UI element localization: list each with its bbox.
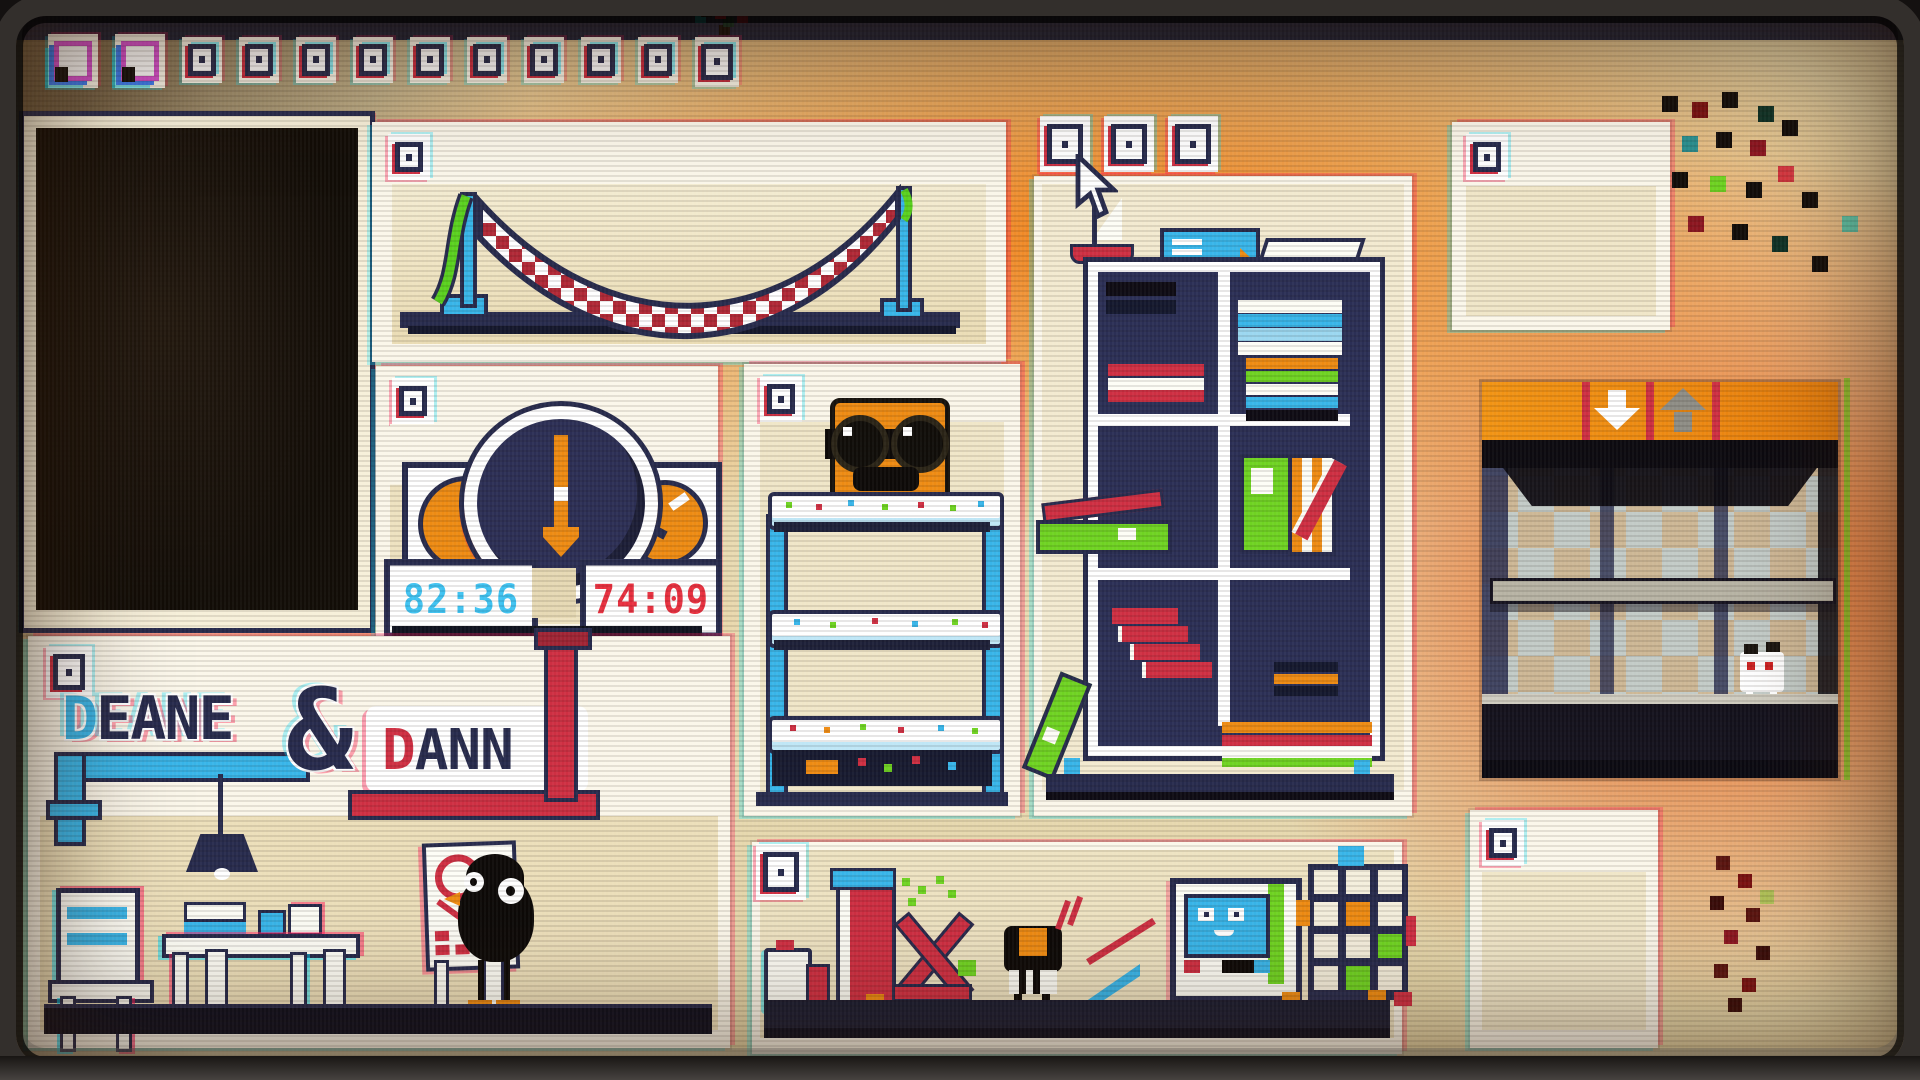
desk-item bbox=[258, 910, 286, 936]
photo-stamp[interactable] bbox=[182, 37, 222, 83]
bird-pupil bbox=[506, 886, 515, 896]
stamp-frame-icon bbox=[188, 44, 216, 76]
elevator-creature bbox=[1740, 652, 1784, 692]
book-stack bbox=[1246, 358, 1338, 369]
red-stairs-books bbox=[1112, 608, 1178, 624]
stamp-row bbox=[48, 34, 739, 88]
timer-gap bbox=[532, 568, 576, 618]
bunk-shadow bbox=[774, 522, 990, 532]
bunk-floor bbox=[756, 792, 1008, 806]
crate-side-block bbox=[1296, 900, 1310, 926]
creature-teeth bbox=[1019, 970, 1026, 994]
down-arrow-icon bbox=[1594, 408, 1640, 430]
photo-stamp[interactable] bbox=[1168, 116, 1218, 172]
photo-stamp[interactable] bbox=[638, 37, 678, 83]
pipe-flange bbox=[46, 800, 102, 820]
clock-hand-minute bbox=[668, 492, 690, 511]
dark-books bbox=[1274, 662, 1338, 672]
elevator[interactable] bbox=[1482, 382, 1838, 778]
photo-stamp[interactable] bbox=[410, 37, 450, 83]
red-sketch-squares bbox=[435, 931, 449, 941]
crate-side-block bbox=[1406, 916, 1416, 946]
interior-stripe bbox=[1818, 440, 1838, 702]
ladder-cap bbox=[830, 868, 896, 890]
stamp-frame-icon bbox=[587, 44, 615, 76]
dark-window-photo[interactable] bbox=[24, 116, 370, 628]
elevator-header bbox=[1482, 382, 1838, 440]
book-label bbox=[1118, 528, 1136, 540]
photo-stamp[interactable] bbox=[581, 37, 621, 83]
desk bbox=[162, 902, 358, 1006]
stamp-frame-icon bbox=[302, 44, 330, 76]
logo: DEANE & DANN bbox=[48, 682, 648, 852]
stamp-frame-icon bbox=[359, 44, 387, 76]
logo-pipe-blue bbox=[54, 752, 310, 782]
bird-eye-left bbox=[464, 872, 484, 892]
mushroom-creature bbox=[1004, 926, 1062, 1004]
glitch-green-line bbox=[1844, 378, 1850, 780]
green-block bbox=[958, 960, 976, 976]
empty-photo bbox=[1466, 186, 1656, 316]
empty-photo-frame-bottom[interactable] bbox=[1470, 810, 1658, 1048]
orange-splash bbox=[806, 760, 838, 774]
speckles bbox=[858, 758, 866, 766]
desk-legs-left bbox=[172, 952, 189, 1010]
stamp-frame-icon bbox=[644, 44, 672, 76]
bird-eye-right bbox=[498, 878, 524, 904]
clock-arrow-head bbox=[543, 537, 579, 557]
chair bbox=[52, 888, 148, 1006]
stamp-corner-icon bbox=[1466, 134, 1508, 180]
timer-value-left: 82:36 bbox=[403, 576, 519, 622]
mouse-cursor bbox=[1072, 154, 1118, 220]
stamp-corner-icon bbox=[760, 376, 802, 422]
bunk-mattress-3 bbox=[768, 716, 1004, 754]
dark-books bbox=[1106, 282, 1176, 296]
book-stack bbox=[1108, 364, 1204, 376]
elevator-floor-edge bbox=[1482, 694, 1838, 704]
photo-stamp[interactable] bbox=[524, 37, 564, 83]
logo-pipe-red-riser bbox=[544, 640, 578, 802]
chair-slats bbox=[67, 907, 127, 919]
photo-stamp[interactable] bbox=[695, 37, 739, 87]
crate-shelf bbox=[1308, 864, 1408, 1000]
green-book bbox=[1240, 454, 1292, 554]
creature-face bbox=[1009, 970, 1057, 994]
shelf-divider-h bbox=[1098, 414, 1350, 426]
workshop-photo-panel[interactable] bbox=[752, 842, 1402, 1054]
stamp-corner-icon bbox=[388, 134, 430, 180]
desk-books bbox=[184, 902, 246, 922]
desk-floor bbox=[44, 1004, 712, 1034]
red-ladder bbox=[836, 884, 896, 1012]
lamp-bulb bbox=[214, 868, 230, 880]
stamp-frame-icon bbox=[701, 44, 733, 80]
speckles bbox=[794, 619, 800, 625]
photo-stamp[interactable] bbox=[239, 37, 279, 83]
book-stack bbox=[1238, 300, 1342, 313]
down-arrow-icon bbox=[1608, 390, 1626, 410]
hammock-photo bbox=[392, 184, 986, 344]
creature-cap bbox=[1019, 928, 1047, 956]
bunk-photo-panel[interactable] bbox=[744, 364, 1020, 816]
book-label bbox=[1042, 726, 1060, 744]
clock-photo-panel[interactable]: 82:36 74:09 bbox=[376, 366, 718, 666]
empty-photo-frame-top[interactable] bbox=[1452, 122, 1670, 330]
shelf-divider-h bbox=[1098, 568, 1350, 580]
black-bird-creature bbox=[456, 868, 556, 1018]
stamp-corner-icon bbox=[1482, 820, 1524, 866]
screen-pupils bbox=[1204, 912, 1209, 917]
stamp-frame-icon bbox=[473, 44, 501, 76]
workshop-floor bbox=[764, 1000, 1390, 1038]
timer-value-right: 74:09 bbox=[593, 576, 709, 622]
edge-stamp-fragment bbox=[0, 700, 12, 746]
pipe-valve bbox=[534, 628, 592, 650]
lens-glint bbox=[843, 427, 852, 436]
crate-top-block bbox=[1338, 846, 1364, 866]
logo-pipe-blue-elbow bbox=[54, 752, 86, 846]
stamp-frame-icon bbox=[530, 44, 558, 76]
radio-buttons bbox=[1184, 960, 1200, 973]
bird-beak bbox=[444, 892, 460, 906]
logo-letter-d1: D bbox=[62, 684, 96, 754]
creature-ears bbox=[1744, 644, 1758, 654]
hammock-photo-panel[interactable] bbox=[372, 122, 1006, 362]
empty-photo bbox=[1482, 872, 1646, 1030]
stamp-corner-icon bbox=[392, 378, 434, 424]
protruding-green-book bbox=[1036, 520, 1172, 554]
elevator-floor bbox=[1482, 704, 1838, 778]
floor-blue-bits bbox=[1064, 758, 1080, 774]
photo-stamp[interactable] bbox=[48, 34, 98, 88]
stamp-frame-icon bbox=[416, 44, 444, 76]
glasses-character bbox=[830, 398, 950, 504]
hammock-graphic bbox=[392, 184, 986, 344]
desk-top bbox=[162, 934, 360, 958]
photo-stamp[interactable] bbox=[296, 37, 336, 83]
clock-arrow-flange bbox=[543, 527, 579, 537]
lamp-cord bbox=[218, 774, 223, 836]
glasses-lens-left bbox=[831, 415, 889, 473]
speckles bbox=[786, 502, 792, 508]
up-arrow-icon bbox=[1660, 388, 1706, 410]
crt-monitor: 82:36 74:09 bbox=[0, 0, 1920, 1080]
edge-stamp-fragment bbox=[0, 648, 16, 692]
glitch-noise-bottom-right bbox=[1716, 856, 1730, 870]
shelf-divider-v bbox=[1218, 272, 1230, 726]
game-screen: 82:36 74:09 bbox=[0, 0, 1920, 1080]
bunk-under-shadow bbox=[772, 750, 992, 786]
elevator-up-button[interactable] bbox=[1660, 388, 1706, 434]
logo-ampersand: & bbox=[286, 666, 353, 796]
sailboat-hull bbox=[1070, 244, 1134, 264]
speckles bbox=[790, 725, 796, 731]
book-label bbox=[1251, 468, 1273, 494]
green-speckles bbox=[902, 878, 910, 886]
radio-device bbox=[1170, 878, 1302, 1002]
crate-cells bbox=[1314, 870, 1338, 894]
elevator-ceiling bbox=[1482, 440, 1838, 468]
bookshelf-floor bbox=[1046, 774, 1394, 800]
logo-desk-photo-panel[interactable]: DEANE & DANN bbox=[28, 636, 730, 1048]
box-label bbox=[1172, 239, 1202, 245]
photo-stamp[interactable] bbox=[467, 37, 507, 83]
clock-arrow-shaft bbox=[554, 435, 568, 487]
chair-back bbox=[56, 888, 140, 990]
interior-stripe bbox=[1482, 440, 1508, 702]
lens-glint bbox=[903, 427, 912, 436]
bookshelf-photo-panel[interactable] bbox=[1034, 176, 1412, 816]
stamp-corner-icon bbox=[756, 844, 806, 900]
bird-legs bbox=[478, 960, 484, 1002]
elevator-handrail bbox=[1490, 578, 1836, 604]
logo-letters-ann: ANN bbox=[415, 718, 513, 783]
bookshelf-stamp-row bbox=[1040, 116, 1218, 172]
desk-item bbox=[288, 904, 322, 936]
glitch-noise-top-right bbox=[1662, 96, 1678, 112]
photo-stamp[interactable] bbox=[353, 37, 393, 83]
radio-side-panel bbox=[1268, 884, 1284, 984]
elevator-down-button[interactable] bbox=[1594, 388, 1640, 434]
glitch-noise bbox=[701, 7, 712, 17]
creature-eyes bbox=[1747, 662, 1755, 670]
stamp-frame-icon bbox=[245, 44, 273, 76]
clock-arrow-gap bbox=[554, 487, 568, 501]
logo-word-dann: DANN bbox=[382, 718, 513, 783]
flask-cap bbox=[776, 940, 794, 950]
clock-arrow-shaft bbox=[554, 501, 568, 527]
photo-stamp[interactable] bbox=[115, 34, 165, 88]
bunk-shadow bbox=[774, 640, 990, 650]
glasses-lens-right bbox=[891, 415, 949, 473]
elevator-interior bbox=[1482, 440, 1838, 702]
logo-letter-d2: D bbox=[382, 718, 415, 783]
radio-screen bbox=[1184, 894, 1270, 958]
stamp-frame-icon bbox=[121, 41, 159, 81]
logo-letters-eane: EANE bbox=[96, 684, 233, 754]
header-stripes bbox=[1582, 382, 1590, 440]
mustache bbox=[853, 467, 919, 491]
desk-legs-right bbox=[290, 952, 307, 1010]
screen-smile bbox=[1214, 930, 1234, 936]
bird-pupil bbox=[470, 878, 477, 886]
logo-word-deane: DEANE bbox=[62, 684, 233, 754]
stamp-frame-icon bbox=[54, 41, 92, 81]
lamp-shade bbox=[186, 834, 258, 872]
floor-book-pile bbox=[1222, 722, 1372, 733]
up-arrow-icon bbox=[1674, 412, 1692, 432]
